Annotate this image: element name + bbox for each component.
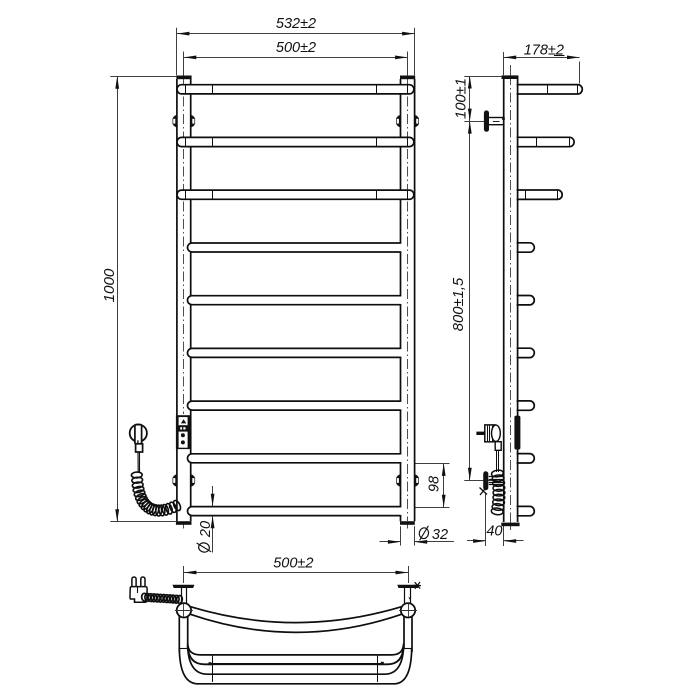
svg-text:98: 98	[426, 476, 442, 492]
svg-text:32: 32	[432, 527, 448, 543]
svg-text:40: 40	[486, 523, 502, 539]
svg-text:20: 20	[198, 521, 214, 538]
svg-text:500±2: 500±2	[276, 40, 316, 56]
svg-text:178±2: 178±2	[524, 43, 564, 59]
svg-text:100±1: 100±1	[453, 78, 469, 119]
svg-text:1000: 1000	[101, 268, 118, 302]
svg-text:800±1,5: 800±1,5	[451, 277, 467, 331]
svg-text:500±2: 500±2	[273, 556, 313, 572]
svg-text:532±2: 532±2	[276, 16, 316, 32]
